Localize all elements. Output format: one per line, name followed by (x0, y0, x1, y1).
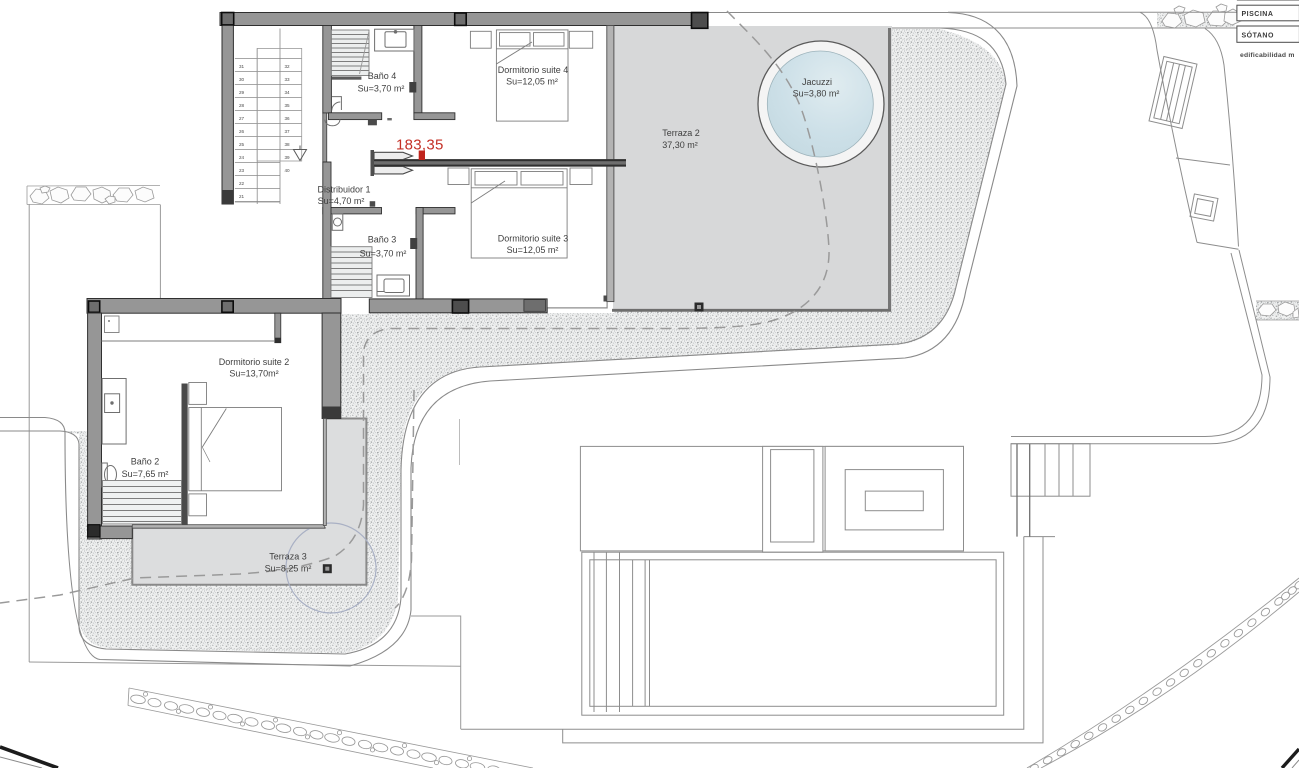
svg-text:Su=3,80 m²: Su=3,80 m² (793, 89, 840, 99)
svg-text:Distribuidor 1: Distribuidor 1 (317, 185, 370, 195)
svg-text:Su=7,65 m²: Su=7,65 m² (122, 469, 169, 479)
svg-text:Su=4,70 m²: Su=4,70 m² (318, 196, 365, 206)
svg-text:21: 21 (239, 194, 245, 199)
svg-text:SÓTANO: SÓTANO (1242, 31, 1274, 40)
svg-text:29: 29 (239, 90, 245, 95)
svg-text:27: 27 (239, 116, 245, 121)
svg-text:Baño 2: Baño 2 (131, 457, 160, 467)
svg-text:25: 25 (239, 142, 245, 147)
svg-text:28: 28 (239, 103, 245, 108)
svg-text:Baño 4: Baño 4 (368, 71, 397, 81)
svg-text:32: 32 (285, 64, 291, 69)
svg-text:Dormitorio suite 3: Dormitorio suite 3 (498, 234, 569, 244)
svg-text:30: 30 (239, 77, 245, 82)
svg-text:34: 34 (285, 90, 291, 95)
svg-text:Baño 3: Baño 3 (368, 235, 397, 245)
svg-text:Terraza 2: Terraza 2 (662, 128, 700, 138)
svg-text:183,35: 183,35 (396, 137, 444, 154)
svg-text:Dormitorio suite 4: Dormitorio suite 4 (498, 65, 569, 75)
svg-text:edificabilidad m: edificabilidad m (1240, 52, 1295, 59)
svg-text:38: 38 (285, 142, 291, 147)
svg-text:24: 24 (239, 155, 245, 160)
svg-text:Su=12,05 m²: Su=12,05 m² (506, 77, 558, 87)
svg-text:31: 31 (239, 64, 245, 69)
svg-text:Su=13,70m²: Su=13,70m² (229, 369, 278, 379)
svg-text:35: 35 (285, 103, 291, 108)
svg-text:Terraza 3: Terraza 3 (269, 552, 307, 562)
svg-text:39: 39 (285, 155, 291, 160)
svg-text:PISCINA: PISCINA (1242, 11, 1274, 18)
svg-text:Su=12,05 m²: Su=12,05 m² (507, 245, 559, 255)
svg-text:22: 22 (239, 181, 245, 186)
svg-text:26: 26 (239, 129, 245, 134)
svg-text:37: 37 (285, 129, 291, 134)
svg-text:Jacuzzi: Jacuzzi (802, 77, 832, 87)
svg-text:Su=3,70 m²: Su=3,70 m² (358, 84, 405, 94)
svg-text:37,30 m²: 37,30 m² (662, 140, 698, 150)
svg-text:23: 23 (239, 168, 245, 173)
svg-text:36: 36 (285, 116, 291, 121)
svg-text:Dormitorio suite 2: Dormitorio suite 2 (219, 357, 290, 367)
svg-text:33: 33 (285, 77, 291, 82)
svg-text:Su=8,25 m²: Su=8,25 m² (265, 564, 312, 574)
svg-text:40: 40 (285, 168, 291, 173)
svg-text:Su=3,70 m²: Su=3,70 m² (360, 249, 407, 259)
